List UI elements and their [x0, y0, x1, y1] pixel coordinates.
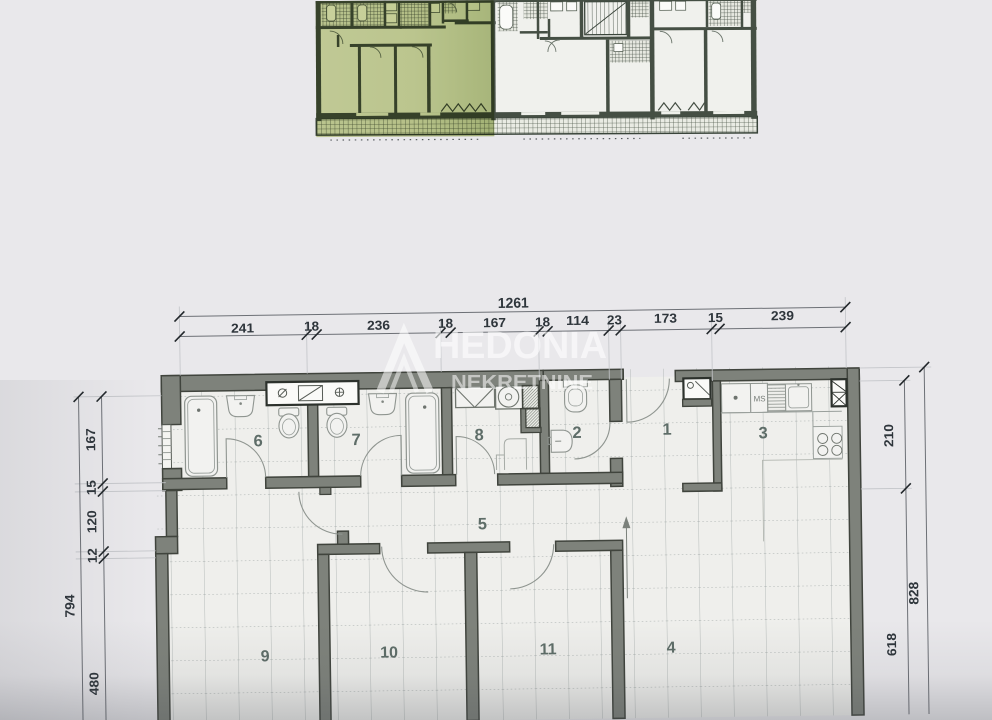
- svg-text:173: 173: [654, 311, 677, 326]
- svg-text:241: 241: [231, 320, 254, 335]
- svg-text:HEDONIA: HEDONIA: [433, 325, 607, 367]
- svg-text:7: 7: [351, 431, 360, 449]
- svg-text:2: 2: [572, 424, 581, 442]
- svg-text:828: 828: [906, 581, 921, 605]
- svg-text:8: 8: [474, 426, 483, 444]
- svg-text:18: 18: [304, 319, 319, 334]
- svg-text:MS: MS: [754, 394, 766, 403]
- svg-text:210: 210: [881, 424, 896, 447]
- svg-text:5: 5: [478, 515, 487, 533]
- svg-text:15: 15: [708, 310, 723, 325]
- svg-text:23: 23: [607, 312, 622, 327]
- svg-text:6: 6: [253, 432, 262, 450]
- svg-text:239: 239: [771, 308, 794, 323]
- svg-text:1: 1: [662, 421, 671, 439]
- svg-text:236: 236: [367, 318, 390, 333]
- svg-text:NEKRETNINE: NEKRETNINE: [451, 371, 593, 394]
- svg-text:3: 3: [758, 424, 767, 442]
- svg-text:1261: 1261: [498, 296, 529, 312]
